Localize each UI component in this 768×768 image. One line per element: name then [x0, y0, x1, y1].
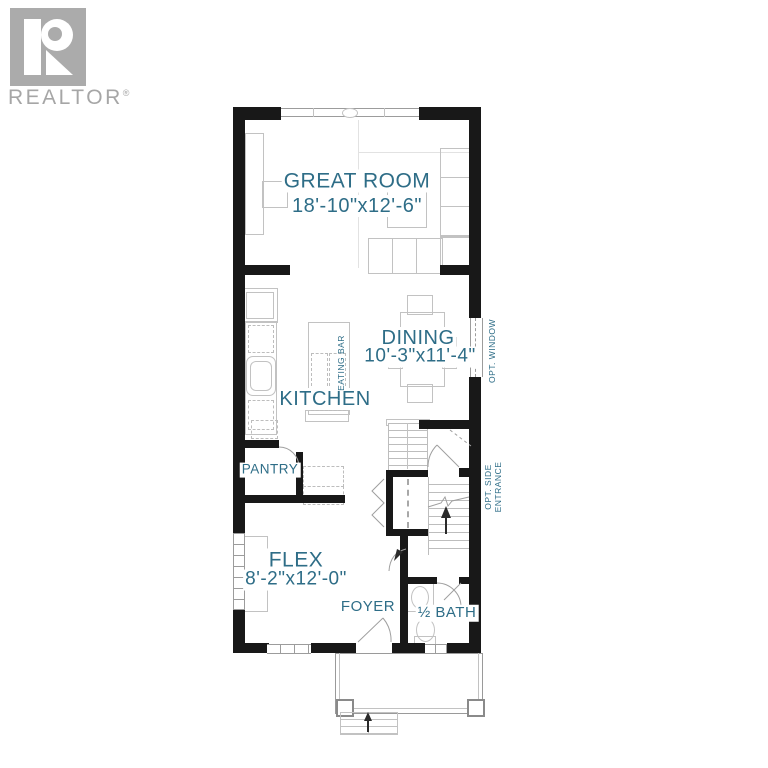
realtor-logo-icon — [10, 8, 86, 86]
closet-hanger-zigzag — [372, 479, 384, 527]
great-room-dims: 18'-10"x12'-6" — [290, 195, 424, 217]
cabinet-dashed-3 — [251, 420, 278, 439]
closet-rod — [407, 479, 409, 528]
dining-chair-bottom — [407, 384, 433, 403]
dining-chair-top — [407, 295, 433, 315]
foyer-label: FOYER — [339, 599, 397, 616]
porch-inner-line — [339, 653, 479, 709]
opt-side-entrance-label-line2: ENTRANCE — [493, 462, 503, 513]
wall-closet-bottom — [386, 529, 428, 536]
window-center-detail — [342, 108, 358, 118]
registered-symbol: ® — [123, 88, 130, 98]
wall-closet-left — [386, 470, 393, 536]
opt-window-label: OPT. WINDOW — [487, 319, 497, 383]
wall-closet-top — [386, 470, 428, 477]
logo-r-stem — [24, 19, 41, 75]
bath-bottom-window — [425, 644, 447, 654]
sofa-bottom-section — [368, 238, 443, 274]
wordmark-text: REALTOR — [8, 86, 123, 109]
great-room-label: GREAT ROOM — [282, 169, 433, 192]
eating-bar-label: EATING BAR — [336, 335, 346, 391]
cabinet-dashed-1 — [248, 325, 274, 353]
dining-dims: 10'-3"x11'-4" — [362, 347, 477, 368]
front-door-arc — [383, 618, 391, 642]
wall-bottom-2 — [311, 643, 356, 653]
stairs-lower-run — [428, 477, 470, 555]
wall-pantry-bottom — [233, 495, 345, 503]
flex-bottom-window — [267, 644, 311, 654]
window-mullion-1 — [313, 108, 314, 117]
side-entrance-dashed-swing — [450, 430, 471, 446]
side-entrance-door-arc — [428, 445, 437, 467]
kitchen-label: KITCHEN — [277, 388, 372, 410]
wall-greatroom-divider-left — [233, 265, 290, 275]
realtor-logo-graphic — [10, 8, 86, 86]
realtor-wordmark: REALTOR® — [8, 86, 129, 110]
logo-r-bowl-hole — [48, 27, 62, 41]
wall-greatroom-divider-right — [440, 265, 481, 275]
pantry-label: PANTRY — [240, 463, 301, 478]
floor-plan-canvas: REALTOR® — [0, 0, 768, 768]
front-door-leaf — [358, 618, 383, 642]
opt-side-entrance-label-line1: OPT. SIDE — [483, 464, 493, 510]
wall-bottom-1 — [233, 643, 269, 653]
wall-pantry-top — [243, 440, 279, 448]
wall-bath-top-left — [405, 577, 437, 584]
wall-right-upper — [469, 107, 481, 318]
flex-dims: 8'-2"x12'-0" — [243, 570, 349, 591]
stove-inner — [250, 361, 272, 391]
ceiling-line-vertical — [358, 120, 359, 268]
wall-bottom-4 — [447, 643, 481, 653]
wall-bottom-3 — [392, 643, 425, 653]
stairs-upper-run — [388, 423, 428, 471]
half-bath-label: ½ BATH — [416, 605, 479, 622]
porch-steps-centerline — [368, 712, 369, 733]
wall-foyer-bath — [400, 536, 408, 643]
wall-dining-bottom — [419, 420, 481, 429]
sofa-right-section — [440, 148, 471, 238]
wall-stair-mid-stub — [459, 468, 481, 477]
window-mullion-2 — [384, 108, 385, 117]
bath-door-leaf — [444, 583, 461, 600]
porch-steps — [340, 712, 398, 735]
side-entrance-door-leaf — [437, 445, 459, 467]
wall-bath-top-right — [459, 577, 471, 584]
porch-post-right — [467, 699, 485, 717]
pantry-shelf-1 — [303, 466, 344, 487]
stairs-upper-centerline — [407, 423, 408, 469]
fridge-inner — [246, 292, 274, 319]
